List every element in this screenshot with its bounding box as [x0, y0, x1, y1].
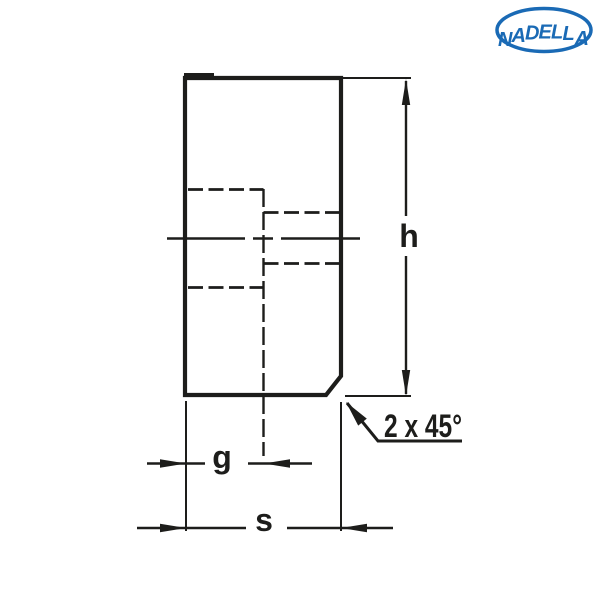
dim-h-arrow-down-icon [402, 370, 410, 396]
nadella-logo: NADELLA [497, 9, 591, 52]
dim-label-bore: g [212, 439, 232, 475]
dim-g-arrow-left-icon [264, 459, 290, 468]
dim-label-height: h [399, 218, 419, 254]
dim-h-arrow-up-icon [402, 79, 410, 105]
dim-s-arrow-right-icon [160, 524, 186, 533]
technical-drawing-page: h g s 2 x 45° NADELLA [0, 0, 600, 600]
dim-label-width: s [255, 502, 273, 538]
drawing-svg: h g s 2 x 45° NADELLA [0, 0, 600, 600]
dim-s-arrow-left-icon [341, 524, 367, 533]
dim-g-arrow-right-icon [160, 459, 186, 468]
chamfer-note: 2 x 45° [384, 408, 462, 444]
